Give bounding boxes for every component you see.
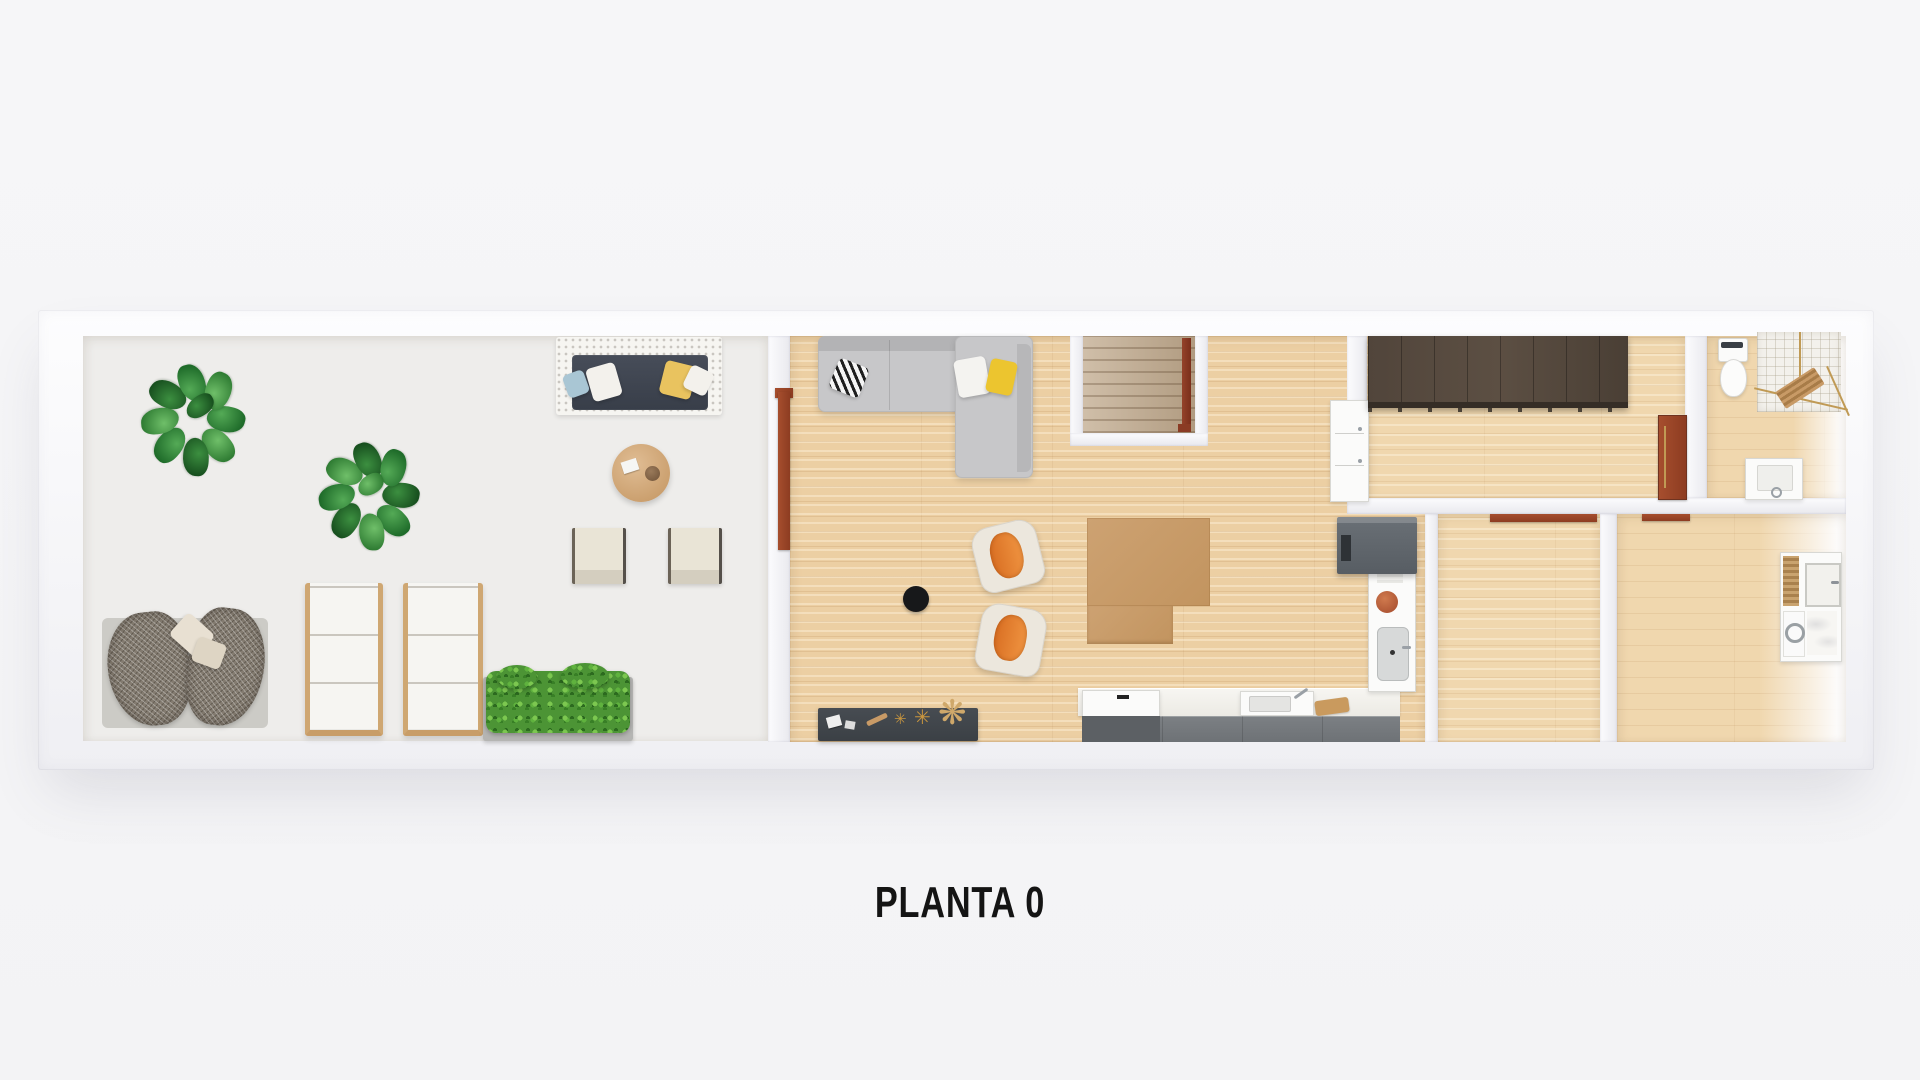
sofa-chaise: [955, 336, 1033, 478]
center-table-extension: [1087, 606, 1173, 644]
wall-kitchen-room1: [1425, 514, 1438, 742]
floor-plan-render: ✳ ✳ ❋: [0, 0, 1920, 1080]
sun-lounger: [403, 583, 483, 736]
bathroom-door: [1658, 415, 1687, 500]
toilet: [1718, 338, 1748, 398]
kitchen-base-cabinets: [1082, 716, 1400, 742]
sun-lounger: [305, 583, 383, 736]
bedroom1-door: [1490, 514, 1597, 522]
potted-plant-icon: [309, 442, 422, 555]
washer-dryer-unit: [1780, 552, 1842, 662]
star-decor-icon: ✳: [894, 712, 907, 727]
faucet-icon: [1402, 646, 1411, 649]
door-handle: [1831, 581, 1839, 584]
building-outline: ✳ ✳ ❋: [38, 310, 1874, 770]
dried-grass-icon: ❋: [938, 696, 967, 730]
plan-title: PLANTA 0: [211, 878, 1709, 928]
book: [844, 720, 855, 730]
side-sink: [1377, 627, 1409, 681]
wicker-lounge-chair: [100, 606, 270, 736]
kitchen-side-cabinet: [1368, 560, 1416, 692]
outdoor-chair: [572, 528, 626, 584]
kitchen-sink: [1240, 691, 1314, 716]
gray-appliance: [1337, 517, 1417, 574]
bedroom2-door: [1642, 514, 1690, 521]
wall-hallroom-bath: [1685, 336, 1707, 498]
wood-decor: [866, 713, 888, 727]
potted-plant-icon: [133, 366, 247, 480]
bedroom1-floor: [1438, 514, 1600, 742]
magazine: [621, 458, 640, 474]
washer-door: [1783, 611, 1805, 657]
stair-rail: [1182, 338, 1191, 424]
pillow-white: [953, 356, 991, 399]
plant-pot: [645, 466, 660, 481]
cabinet-door: [1805, 563, 1841, 607]
outdoor-chair: [668, 528, 722, 584]
bathroom-sink: [1745, 458, 1803, 500]
wardrobe-closet: [1368, 336, 1628, 408]
planter-hedge: [483, 677, 633, 741]
decor-sideboard: ✳ ✳ ❋: [818, 708, 978, 741]
wall-room1-room2: [1600, 514, 1617, 742]
corner-shower: [1757, 332, 1841, 412]
outdoor-round-table: [612, 444, 670, 502]
dishwasher: [1082, 690, 1160, 717]
center-table: [1087, 518, 1210, 606]
drying-rack: [1783, 556, 1799, 606]
book: [826, 714, 842, 728]
faucet-icon: [1771, 487, 1782, 498]
wall-horizontal-divider: [1347, 498, 1846, 514]
round-rug: [903, 586, 929, 612]
tall-cabinet-door: [1330, 400, 1369, 502]
staircase: [1070, 336, 1208, 446]
star-decor-icon: ✳: [914, 708, 931, 728]
entrance-door-leaf: [778, 392, 790, 550]
armchair: [973, 601, 1050, 679]
fruit-bowl: [1376, 591, 1398, 613]
